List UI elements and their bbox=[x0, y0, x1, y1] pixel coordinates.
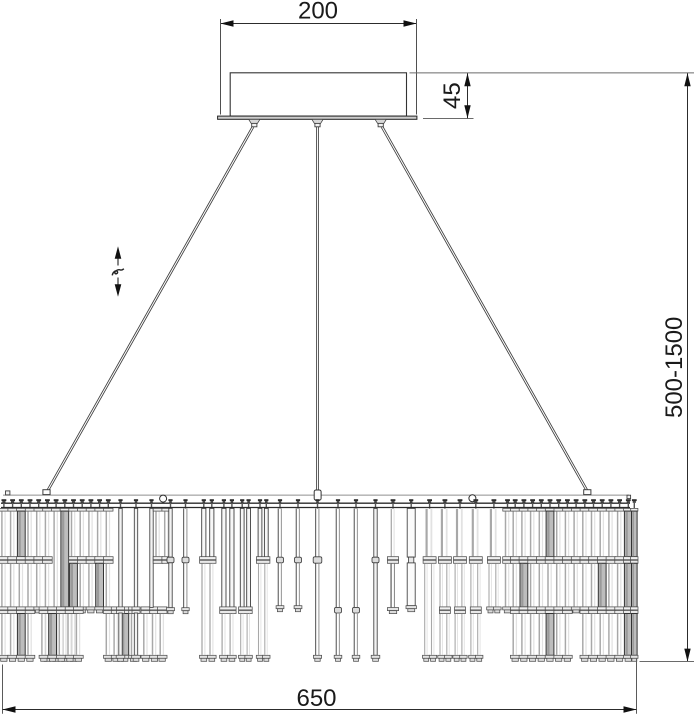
svg-text:200: 200 bbox=[298, 0, 338, 25]
svg-text:650: 650 bbox=[296, 685, 336, 712]
svg-text:500-1500: 500-1500 bbox=[661, 317, 688, 418]
svg-text:45: 45 bbox=[439, 82, 466, 109]
